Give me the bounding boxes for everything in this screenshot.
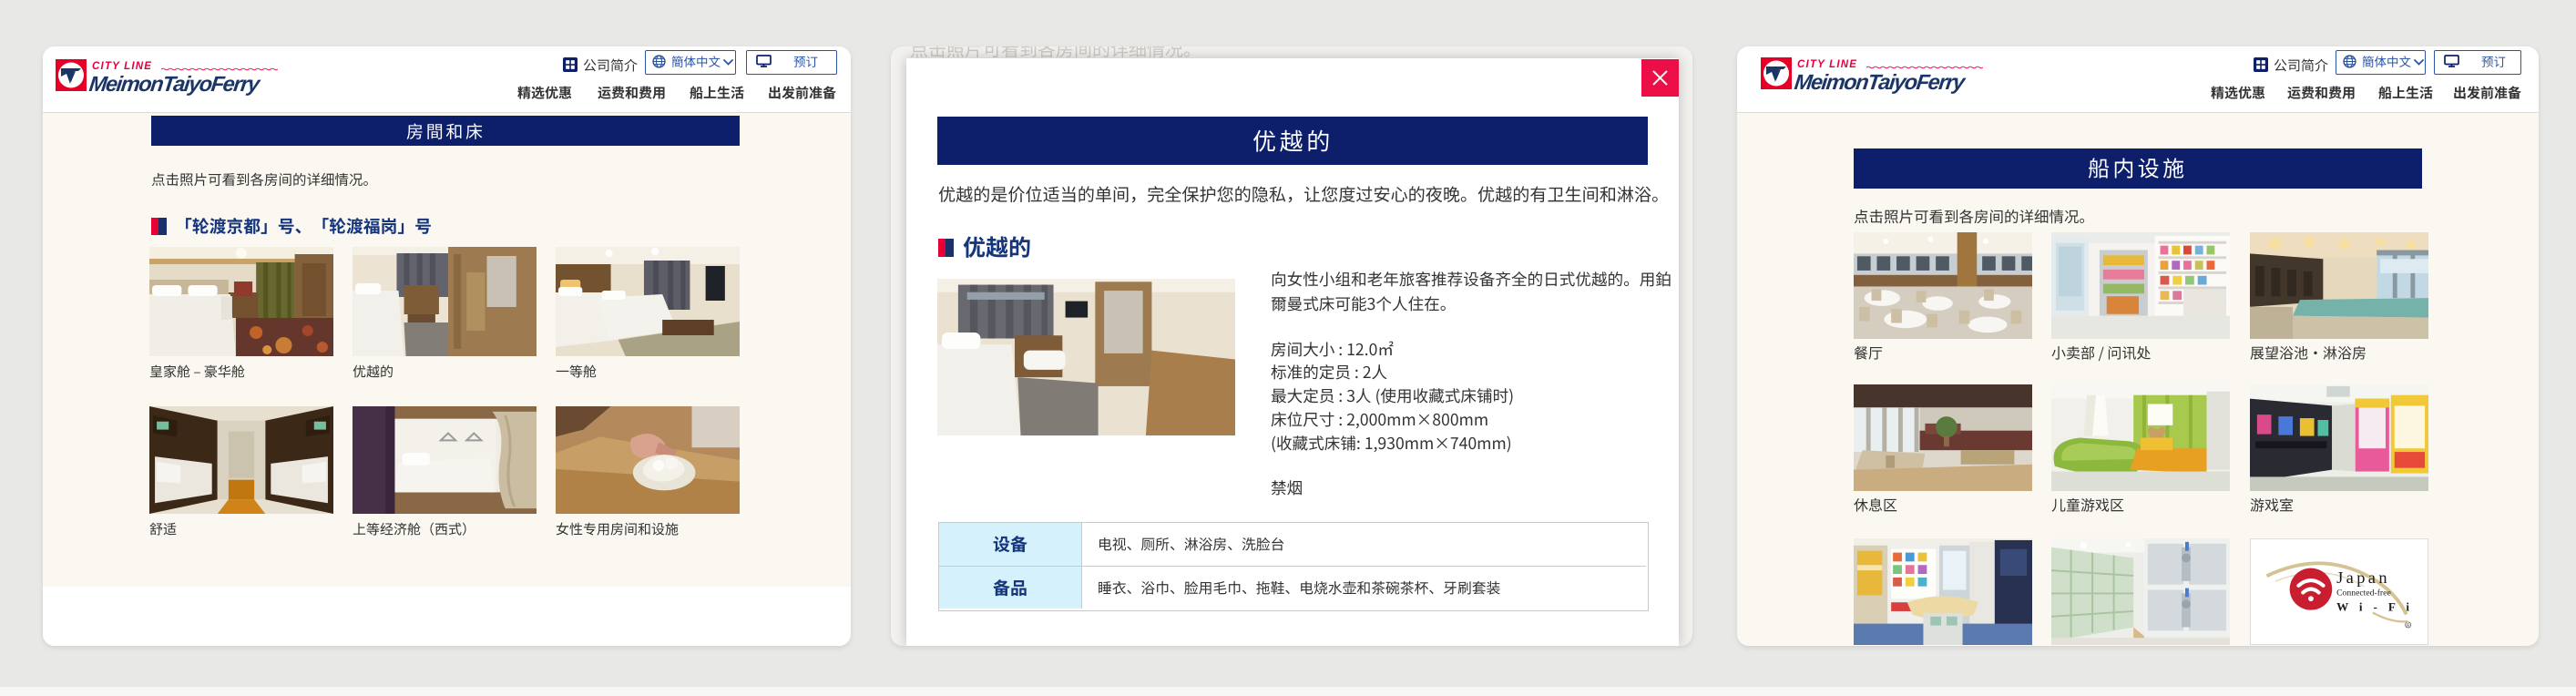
svg-text:Japan: Japan (2336, 568, 2390, 587)
svg-text:W i - F i: W i - F i (2336, 600, 2413, 614)
svg-text:R: R (2407, 623, 2410, 629)
svg-text:Connected-free: Connected-free (2336, 588, 2391, 598)
